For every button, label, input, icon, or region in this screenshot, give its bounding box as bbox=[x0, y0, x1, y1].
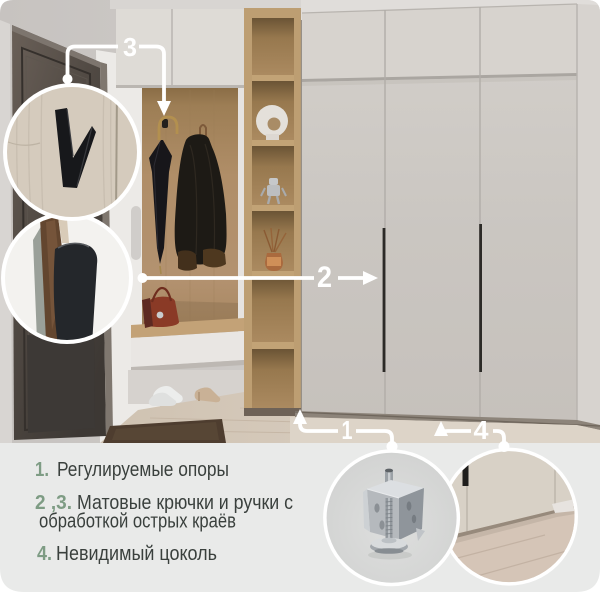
svg-text:Невидимый цоколь: Невидимый цоколь bbox=[56, 543, 217, 565]
svg-text:4: 4 bbox=[474, 415, 490, 445]
svg-text:4.: 4. bbox=[37, 543, 52, 565]
svg-text:1: 1 bbox=[342, 415, 353, 445]
svg-text:3: 3 bbox=[123, 32, 137, 62]
svg-text:1.: 1. bbox=[35, 459, 49, 481]
svg-text:обработкой острых краёв: обработкой острых краёв bbox=[39, 511, 236, 533]
svg-text:2: 2 bbox=[317, 261, 332, 294]
svg-text:Регулируемые опоры: Регулируемые опоры bbox=[57, 459, 229, 481]
